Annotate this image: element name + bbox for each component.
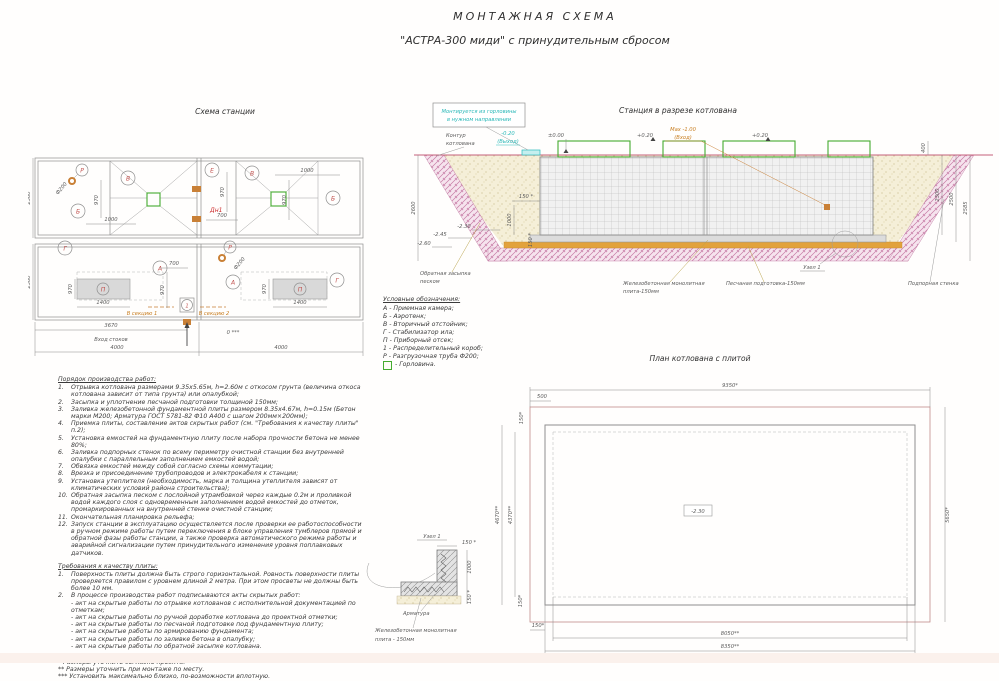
svg-text:(Выход): (Выход) xyxy=(497,139,519,145)
svg-text:Г: Г xyxy=(335,278,339,285)
svg-text:1: 1 xyxy=(185,303,188,309)
pit-depth-mark: -2.30 xyxy=(691,509,705,515)
pit-plan-outlines: -2.30 xyxy=(530,407,930,622)
svg-text:4000: 4000 xyxy=(274,345,288,351)
svg-text:2360: 2360 xyxy=(28,191,32,205)
act-item: - акт на скрытые работы по армированию ф… xyxy=(71,628,366,635)
svg-text:-2.60: -2.60 xyxy=(417,241,431,247)
work-order-steps: 1.Отрывка котлована размерами 9.35х5.65м… xyxy=(58,384,366,557)
work-step: 6.Заливка подпорных стенок по всему пери… xyxy=(58,449,366,463)
station-plan-title: Схема станции xyxy=(195,107,255,116)
node-detail-title: Узел 1 xyxy=(423,534,440,540)
svg-text:Обратная засыпка: Обратная засыпка xyxy=(420,271,471,277)
svg-text:500: 500 xyxy=(537,394,548,400)
title-line2: "АСТРА-300 миди" с принудительным сбросо… xyxy=(285,34,785,47)
svg-text:Подпорная стенка: Подпорная стенка xyxy=(908,281,959,287)
legend-title: Условные обозначения: xyxy=(383,296,513,304)
svg-text:Монтируется из горловины: Монтируется из горловины xyxy=(441,109,516,115)
svg-text:2600: 2600 xyxy=(411,201,417,215)
svg-text:9350*: 9350* xyxy=(722,383,738,389)
sand-prep-layer xyxy=(504,242,902,248)
svg-text:2500: 2500 xyxy=(949,192,955,206)
svg-text:2360: 2360 xyxy=(28,275,32,289)
svg-text:4000: 4000 xyxy=(110,345,124,351)
svg-text:150*: 150* xyxy=(518,594,524,607)
work-order-title: Порядок производства работ: xyxy=(58,376,366,383)
instrument-bays xyxy=(77,272,327,300)
svg-text:970: 970 xyxy=(160,284,166,295)
act-item: - акт на скрытые работы по отрывке котло… xyxy=(71,600,366,614)
svg-text:4370**: 4370** xyxy=(508,505,514,524)
discharge-pipe-top: Р Ф200 xyxy=(55,164,88,196)
svg-text:400: 400 xyxy=(921,142,927,153)
svg-text:П: П xyxy=(101,287,106,294)
legend-item: В - Вторичный отстойник; xyxy=(383,321,513,329)
svg-text:5650*: 5650* xyxy=(945,507,951,523)
svg-text:Железобетонная монолитная: Железобетонная монолитная xyxy=(374,628,457,634)
pit-plan-title: План котлована с плитой xyxy=(650,354,751,363)
to-section-1: В секцию 1 xyxy=(127,311,158,317)
svg-text:1000: 1000 xyxy=(507,213,513,227)
svg-text:1000: 1000 xyxy=(300,168,314,174)
svg-text:+0.20: +0.20 xyxy=(637,133,654,139)
svg-text:В: В xyxy=(126,176,130,183)
svg-text:А: А xyxy=(230,280,235,287)
legend-item: Г - Стабилизатор ила; xyxy=(383,329,513,337)
svg-text:Контур: Контур xyxy=(446,133,466,139)
inlet-note: Вход стоков xyxy=(94,337,127,343)
svg-text:150 *: 150 * xyxy=(519,194,534,200)
zero-note: 0 *** xyxy=(227,330,240,336)
outlet-pipe xyxy=(522,150,540,155)
svg-text:плита - 150мм: плита - 150мм xyxy=(375,637,414,643)
section-title: Станция в разрезе котлована xyxy=(619,106,737,115)
legend-item: П - Приборный отсек; xyxy=(383,337,513,345)
svg-text:970: 970 xyxy=(282,194,288,205)
svg-text:Ф200: Ф200 xyxy=(55,181,69,196)
act-item: - акт на скрытые работы по обратной засы… xyxy=(71,643,366,650)
sand-prep-detail xyxy=(397,596,461,604)
work-step: 9.Установка утеплителя (необходимость, м… xyxy=(58,478,366,492)
svg-text:970: 970 xyxy=(68,283,74,294)
svg-text:1400: 1400 xyxy=(96,300,110,306)
pit-plan-drawing: План котлована с плитой -2.30 9350* 500 … xyxy=(355,345,975,658)
plate-requirements-title: Требования к качеству плиты: xyxy=(58,563,366,570)
svg-text:150 *: 150 * xyxy=(462,540,477,546)
svg-text:1000: 1000 xyxy=(467,560,473,574)
notes-column: Порядок производства работ: 1.Отрывка ко… xyxy=(58,376,366,681)
svg-text:В: В xyxy=(250,171,254,178)
legend-item: Б - Аэротенк; xyxy=(383,313,513,321)
gorlovina-marker xyxy=(147,193,160,206)
legend-item: А - Приемная камера; xyxy=(383,305,513,313)
distribution-box: 1 В секцию 1 В секцию 2 xyxy=(127,298,230,317)
svg-text:котлована: котлована xyxy=(446,141,475,147)
svg-text:-0.20: -0.20 xyxy=(501,131,515,137)
pit-contour-label: Контур котлована xyxy=(436,133,475,156)
pit-plan-dims: 9350* 500 150* 4670** 4370** 5650* 150* … xyxy=(495,383,951,654)
plate-requirements-items: 1.Поверхность плиты должна быть строго г… xyxy=(58,571,366,600)
svg-text:970: 970 xyxy=(220,186,226,197)
svg-text:970: 970 xyxy=(262,283,268,294)
page-edge xyxy=(0,653,999,663)
act-item: - акт на скрытые работы по заливке бетон… xyxy=(71,636,366,643)
svg-text:Б: Б xyxy=(76,209,80,216)
svg-text:700: 700 xyxy=(169,261,180,267)
svg-text:8350**: 8350** xyxy=(721,644,740,650)
title-line1: МОНТАЖНАЯ СХЕМА xyxy=(285,10,785,23)
hidden-works-acts: - акт на скрытые работы по отрывке котло… xyxy=(71,600,366,650)
svg-text:Г: Г xyxy=(63,246,67,253)
station-plan-drawing: Схема станции xyxy=(28,100,373,368)
drawing-title: МОНТАЖНАЯ СХЕМА "АСТРА-300 миди" с прину… xyxy=(285,10,785,47)
work-step: 4.Приемка плиты, составление актов скрыт… xyxy=(58,420,366,434)
svg-text:150 *: 150 * xyxy=(467,590,473,605)
svg-text:970: 970 xyxy=(94,194,100,205)
svg-text:Е: Е xyxy=(210,168,214,175)
svg-text:-2.30: -2.30 xyxy=(457,224,471,230)
node-detail: Узел 1 150 * 1000 150 * Арматура Железоб… xyxy=(367,534,477,643)
svg-text:-2.45: -2.45 xyxy=(433,232,447,238)
svg-text:+0.20: +0.20 xyxy=(752,133,769,139)
work-step: 12.Запуск станции в эксплуатацию осущест… xyxy=(58,521,366,557)
svg-text:8050**: 8050** xyxy=(721,631,740,637)
svg-text:150*: 150* xyxy=(532,623,545,629)
svg-text:150*: 150* xyxy=(519,411,525,424)
requirement-item: 1.Поверхность плиты должна быть строго г… xyxy=(58,571,366,593)
svg-text:Ф200: Ф200 xyxy=(233,256,247,271)
svg-text:в нужном направлении: в нужном направлении xyxy=(447,117,512,123)
svg-text:4670**: 4670** xyxy=(495,505,501,524)
svg-text:1000: 1000 xyxy=(104,217,118,223)
svg-text:2300: 2300 xyxy=(935,188,941,202)
requirement-item: 2.В процессе производства работ подписыв… xyxy=(58,592,366,599)
work-step: 10.Обратная засыпка песком с послойной у… xyxy=(58,492,366,514)
svg-text:Р: Р xyxy=(228,245,232,252)
svg-text:(Вход): (Вход) xyxy=(674,135,691,141)
svg-text:3670: 3670 xyxy=(104,323,118,329)
svg-text:П: П xyxy=(298,287,303,294)
svg-text:2585: 2585 xyxy=(963,201,969,215)
svg-text:А: А xyxy=(157,266,162,273)
svg-text:песком: песком xyxy=(420,279,440,285)
footnote: ** Размеры уточнить при монтаже по месту… xyxy=(58,666,366,673)
svg-text:плита-150мм: плита-150мм xyxy=(623,289,659,295)
svg-text:Песчаная подготовка-150мм: Песчаная подготовка-150мм xyxy=(726,281,805,287)
work-step: 11.Окончательная планировка рельефа; xyxy=(58,514,366,521)
work-step: 2.Засыпка и уплотнение песчаной подготов… xyxy=(58,399,366,406)
work-step: 1.Отрывка котлована размерами 9.35х5.65м… xyxy=(58,384,366,398)
work-step: 5.Установка емкостей на фундаментную пли… xyxy=(58,435,366,449)
cross-section-drawing: Станция в разрезе котлована Монтируется … xyxy=(408,95,999,310)
foundation-layers xyxy=(504,235,902,248)
footnote: *** Установить максимально близко, по-во… xyxy=(58,673,366,680)
svg-text:±0.00: ±0.00 xyxy=(548,133,565,139)
svg-text:700: 700 xyxy=(217,213,228,219)
svg-text:Р: Р xyxy=(80,168,84,175)
discharge-pipe-bottom: Р Ф200 xyxy=(219,241,247,271)
svg-text:1400: 1400 xyxy=(293,300,307,306)
work-step: 8.Врезка и присоединение трубопроводов и… xyxy=(58,470,366,477)
svg-text:Б: Б xyxy=(331,196,335,203)
to-section-2: В секцию 2 xyxy=(199,311,230,317)
svg-text:150 *: 150 * xyxy=(528,233,534,248)
svg-text:Железобетонная монолитная: Железобетонная монолитная xyxy=(622,281,705,287)
rebar-label: Арматура xyxy=(402,611,430,617)
work-step: 3.Заливка железобетонной фундаментной пл… xyxy=(58,406,366,420)
svg-text:Max -1.00: Max -1.00 xyxy=(670,127,696,133)
node-callout-label: Узел 1 xyxy=(803,265,820,271)
